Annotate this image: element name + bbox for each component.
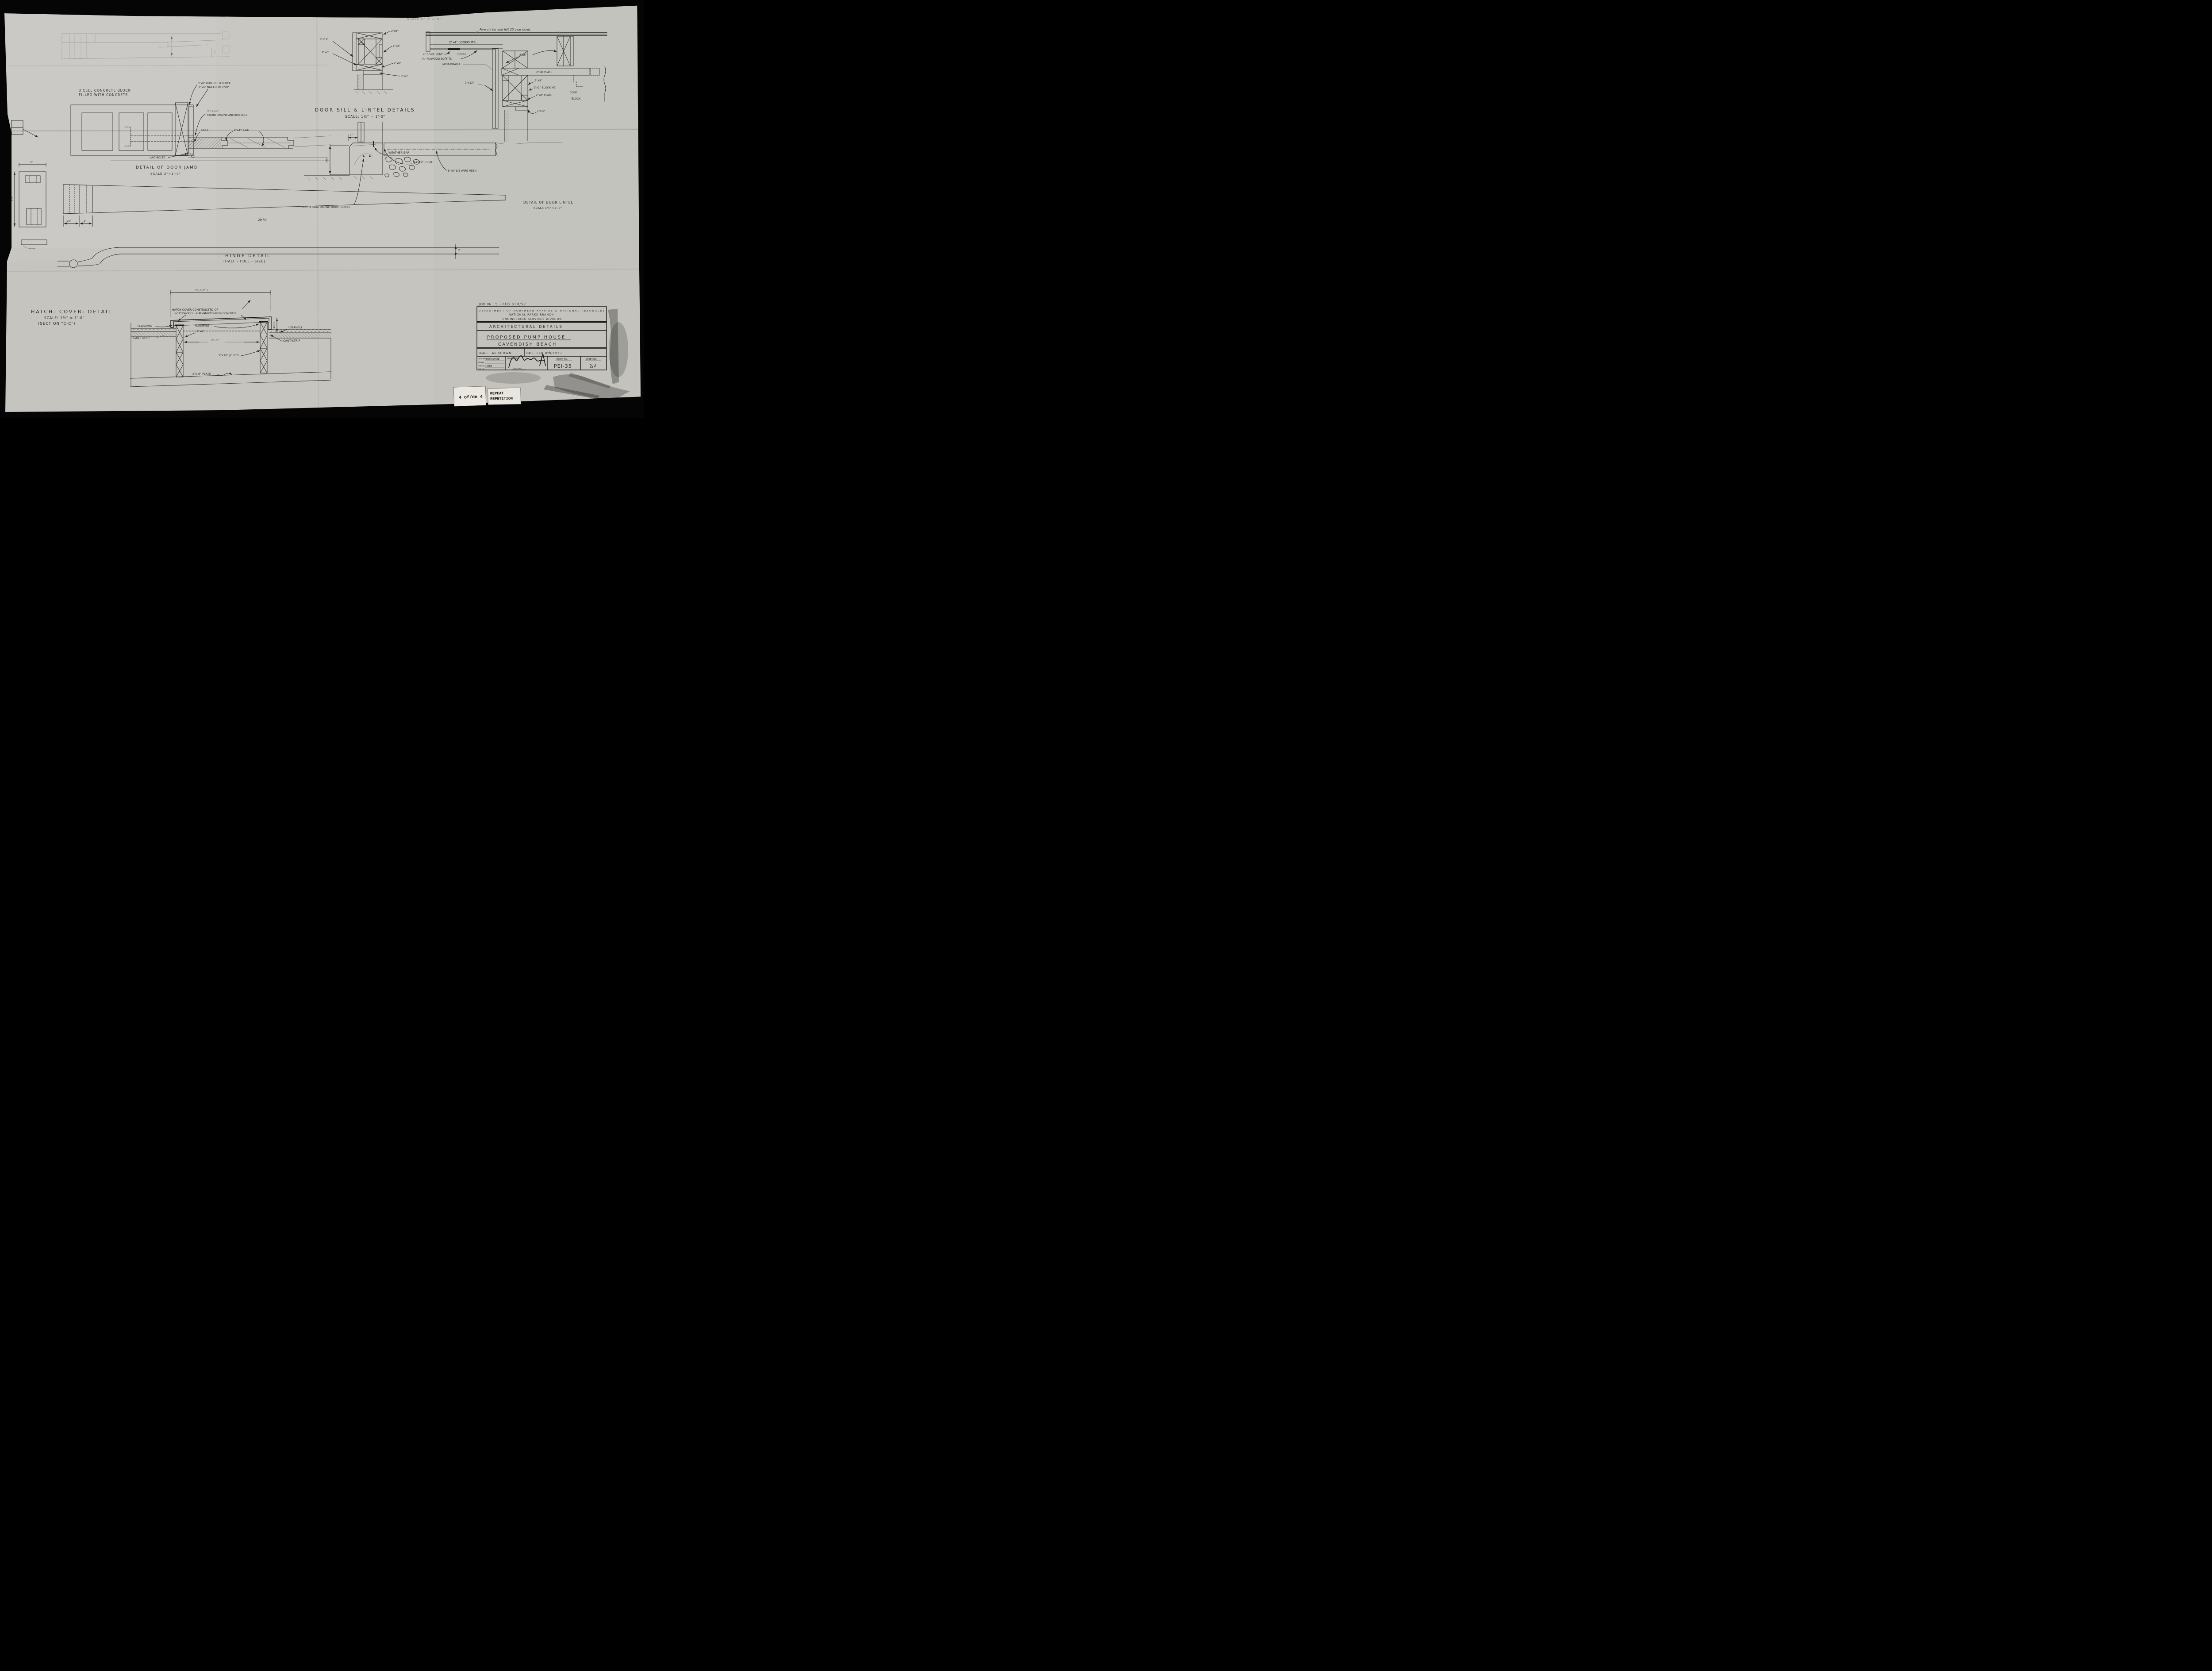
jamb-bolt-note1: 3"x8" BOLTED TO BLOCK (198, 82, 231, 85)
job-line: JOB № 15 - FEB 8TH/57 (478, 302, 526, 306)
date-label: DATE (526, 352, 534, 355)
hatch-dim-width: 2'- 8½" ± (195, 289, 209, 292)
scale-label: SCALE: (479, 352, 488, 355)
jamb-scale: SCALE 3"=1'-0" (150, 172, 181, 176)
hinge-dim-138: 1⅜" (66, 220, 71, 223)
faint-dim-10: 10" (167, 42, 170, 47)
sheet-label: SHEET NO. (586, 358, 597, 361)
block-note-line2: FILLED WITH CONCRETE (79, 93, 128, 97)
dept-line3: ENGINEERING SERVICES DIVISION (503, 318, 562, 321)
dept-line1: DEPARTMENT OF NORTHERN AFFAIRS & NATIONA… (479, 310, 604, 312)
jamb-lag-label: LAG BOLTS (150, 156, 165, 159)
hatch-flashing-right: FLASHING (195, 324, 209, 327)
hatch-plate: 2"x 8" PLATE (192, 372, 211, 376)
hinge-dim-29: 29 ¾" (258, 218, 267, 222)
hatch-dim-28: 2'- 8" (211, 339, 219, 342)
jamb-anchor-note1: ½" x 10" (207, 110, 219, 113)
eave-facia: FACIA BOARD (442, 63, 460, 66)
sill-scale: SCALE: 1½" = 1'-0" (345, 115, 385, 119)
dim-2in: 2" (30, 161, 33, 164)
eave-soffits: ¼" PLYWOOD SOFFITS (422, 58, 452, 61)
eave-plate-low: 2"x8" PLATE (536, 94, 552, 97)
eave-2x6: 2"x6" (519, 54, 527, 57)
sill-dim-7half: 7½" (326, 157, 329, 163)
hatch-flashing-left: FLASHING (138, 324, 152, 328)
eave-conc2: BLOCK (572, 97, 581, 100)
eave-felt-note: Five ply tar and felt 20 year bond. (480, 28, 531, 31)
block-note-line1: 3 CELL CONCRETE BLOCK (79, 89, 131, 92)
repeat-badge: REPEAT REPETITION (488, 388, 521, 404)
eave-1x12: 1"x12" (465, 81, 474, 85)
block-note: 3 CELL CONCRETE BLOCK FILLED WITH CONCRE… (79, 89, 131, 97)
top-cut-scale: SCALE ¾" = 1'-0" (407, 17, 442, 21)
eave-conc1: CONC. (570, 91, 579, 94)
lintel-3x6: 3"x6" (401, 75, 408, 78)
sill-wire-mesh: 6"x6" 8/8 WIRE MESH (448, 169, 476, 173)
page-badge-text: 4 of/de 4 (459, 394, 483, 400)
project-line1: PROPOSED PUMP HOUSE (487, 335, 566, 340)
eave-lookouts: 2"x4" LOOKOUTS (449, 41, 476, 44)
project-line2: CAVENDISH BEACH (498, 342, 557, 347)
hatch-note1: HATCH COVER CONSTRUCTED-OF (172, 308, 219, 312)
hinge-title: HINGE DETAIL (225, 254, 271, 258)
hatch-cant-left: CANT STRIP (133, 336, 150, 340)
eave-vent: 4" CONT. VENT (423, 53, 443, 56)
repeat-badge-line1: REPEAT (490, 391, 504, 396)
eave-plate-top: 2"x8 PLATE (536, 70, 553, 74)
date-value: FEB 8th/1957 (537, 351, 562, 355)
sheet-value: 2/2 (589, 363, 597, 369)
hatch-2x8: 2"x8" (196, 330, 204, 333)
designed-label: DESIGNED (478, 358, 487, 360)
lintel-1x12: 1"x12" (319, 38, 329, 41)
dept-line2: NATIONAL PARKS BRANCH (509, 313, 554, 316)
sill-weather-bar: WEATHER BAR (388, 151, 410, 154)
index-value: PEI-35 (554, 363, 572, 369)
jamb-bolt-note2: 1"x6" NAILED TO 2"x8" (199, 86, 230, 89)
sill-title: DOOR SILL & LINTEL DETAILS (315, 108, 415, 113)
hatch-cant-right: CANT·STRIP (283, 339, 300, 343)
hinge-dim-38: ⅜" (458, 249, 461, 251)
hinge-subtitle: (HALF - FULL - SIZE) (223, 259, 265, 263)
arch-details: ARCHITECTURAL DETAILS (489, 325, 563, 329)
jamb-anchor-note2: COUNTERSUNK ANCHOR BOLT (207, 114, 247, 117)
checked-label: CHECKED (478, 365, 486, 367)
hatch-section: (SECTION "C-C") (38, 322, 76, 326)
eave-screen: SCREEN (457, 53, 466, 56)
file-label: FILE NO. (478, 368, 485, 370)
hatch-scale: SCALE: 1½" = 1'-0" (44, 316, 84, 320)
lintel-detail-title: DETAIL OF DOOR LINTEL (523, 200, 573, 204)
scale-value: AS SHOWN (492, 351, 511, 355)
drawn-label: DRAWN (478, 361, 484, 363)
jamb-stile-label: STILE (201, 128, 209, 132)
sill-dim-4: 4" (350, 134, 353, 137)
lintel-2x2: 2"x2" (322, 51, 329, 54)
scanned-blueprint-sheet: 10" 2¼" 2" 2¾" 3 CELL CONCRETE BLOCK FIL… (0, 0, 644, 418)
hatch-joists: 2"x10" JOISTS (219, 354, 238, 357)
hatch-dim-45: 4½"± (273, 321, 276, 328)
hatch-gravel: (GRAVEL) (288, 326, 302, 329)
repeat-badge-line2: REPETITION (490, 397, 513, 401)
lintel-detail-scale: SCALE 1½"=1'-0" (534, 206, 562, 210)
eave-blocking: 1"x1" BLOCKING (534, 86, 556, 89)
lintel-2x8-top: 2"x8" (391, 30, 399, 33)
hatch-note2: ¾" PLYWOOD. - GALVANIZED-IRON COVERED (174, 312, 236, 315)
sill-mastic-joint: MASTIC JOINT (413, 161, 432, 164)
lintel-1x8: 1"x8" (393, 45, 400, 48)
eave-1x8: 1"x8" (535, 79, 542, 82)
page-badge: 4 of/de 4 (453, 386, 486, 406)
jamb-tg-label: 1"x4" T.&G (234, 128, 250, 132)
eave-1x6: 1"x 6" (537, 110, 545, 113)
index-label: INDEX NO. (557, 358, 568, 361)
hinge-dim-1: 1" (84, 220, 86, 223)
hatch-title: HATCH- COVER- DETAIL (31, 309, 112, 315)
chief-label: CHIEF ENG. (513, 368, 522, 370)
lintel-2x8-bot: 2"x8" (394, 62, 401, 65)
jamb-title: DETAIL OF DOOR JAMB (136, 166, 198, 170)
